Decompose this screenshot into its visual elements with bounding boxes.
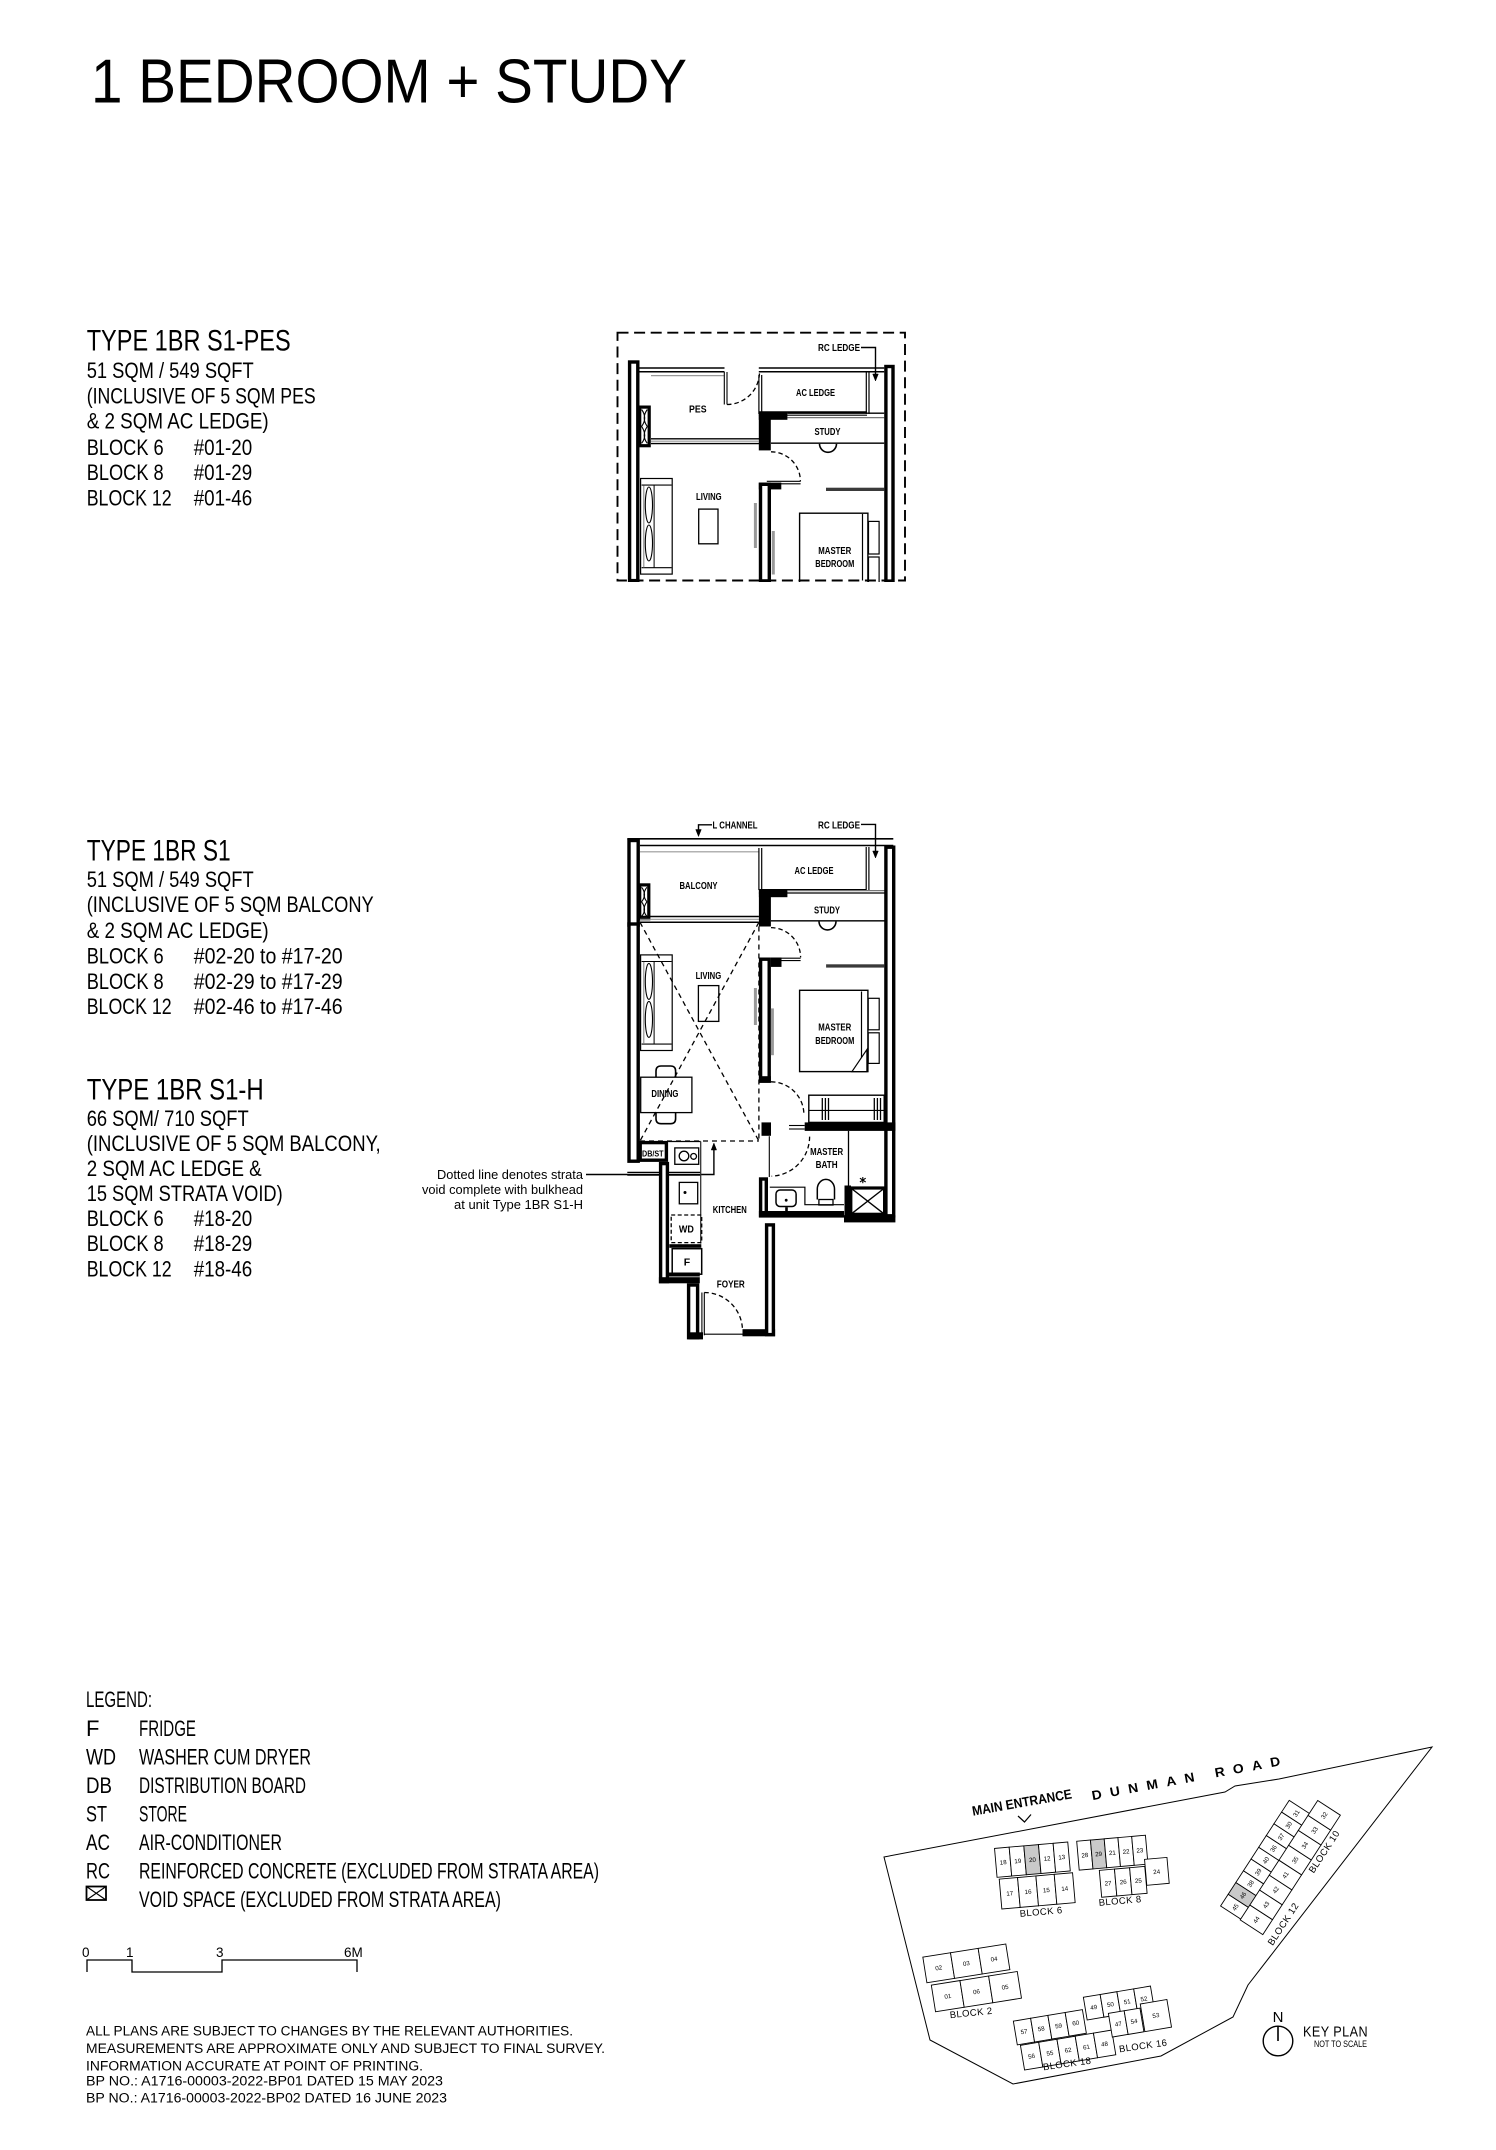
svg-text:BLOCK 6: BLOCK 6: [1019, 1905, 1063, 1920]
svg-text:66 SQM/ 710 SQFT: 66 SQM/ 710 SQFT: [87, 1106, 249, 1131]
svg-text:25: 25: [1135, 1877, 1143, 1885]
svg-text:LIVING: LIVING: [696, 491, 722, 503]
svg-text:AC: AC: [86, 1830, 110, 1855]
svg-text:TYPE 1BR S1-H: TYPE 1BR S1-H: [87, 1074, 264, 1107]
svg-text:BLOCK 6: BLOCK 6: [87, 944, 164, 969]
svg-text:(INCLUSIVE OF 5 SQM BALCONY: (INCLUSIVE OF 5 SQM BALCONY: [87, 892, 374, 917]
svg-text:18: 18: [999, 1859, 1007, 1867]
svg-text:MAIN ENTRANCE: MAIN ENTRANCE: [971, 1786, 1073, 1818]
svg-text:BP NO.: A1716-00003-2022-BP01: BP NO.: A1716-00003-2022-BP01 DATED 15 M…: [86, 2073, 443, 2088]
svg-text:BEDROOM: BEDROOM: [815, 558, 854, 570]
svg-text:19: 19: [1014, 1858, 1022, 1866]
svg-text:1 BEDROOM + STUDY: 1 BEDROOM + STUDY: [91, 47, 687, 116]
svg-text:21: 21: [1109, 1850, 1117, 1858]
svg-text:#02-29 to #17-29: #02-29 to #17-29: [194, 969, 343, 994]
svg-text:& 2 SQM AC LEDGE): & 2 SQM AC LEDGE): [87, 409, 269, 434]
svg-text:FOYER: FOYER: [717, 1278, 745, 1290]
svg-text:F: F: [684, 1257, 691, 1269]
svg-text:29: 29: [1095, 1851, 1103, 1859]
svg-text:STUDY: STUDY: [815, 426, 841, 438]
svg-text:BLOCK 8: BLOCK 8: [87, 1231, 164, 1256]
svg-text:REINFORCED CONCRETE (EXCLUDED: REINFORCED CONCRETE (EXCLUDED FROM STRAT…: [139, 1859, 599, 1884]
svg-text:BLOCK 8: BLOCK 8: [87, 460, 164, 485]
svg-text:26: 26: [1120, 1879, 1128, 1887]
svg-text:(INCLUSIVE OF 5 SQM PES: (INCLUSIVE OF 5 SQM PES: [87, 384, 316, 409]
svg-text:#01-46: #01-46: [194, 486, 253, 511]
svg-text:13: 13: [1058, 1854, 1066, 1862]
svg-text:RC: RC: [86, 1859, 110, 1884]
svg-text:F: F: [86, 1716, 99, 1741]
svg-text:#18-29: #18-29: [194, 1231, 253, 1256]
svg-text:INFORMATION ACCURATE AT POINT: INFORMATION ACCURATE AT POINT OF PRINTIN…: [86, 2058, 423, 2073]
svg-text:BLOCK 8: BLOCK 8: [87, 969, 164, 994]
svg-text:23: 23: [1136, 1847, 1144, 1855]
svg-text:at unit Type 1BR S1-H: at unit Type 1BR S1-H: [454, 1198, 583, 1212]
svg-text:ST: ST: [86, 1802, 107, 1827]
svg-text:14: 14: [1061, 1885, 1069, 1893]
svg-text:KITCHEN: KITCHEN: [713, 1204, 747, 1216]
svg-text:RC LEDGE: RC LEDGE: [818, 342, 860, 354]
svg-text:#02-20 to #17-20: #02-20 to #17-20: [194, 944, 343, 969]
svg-text:MEASUREMENTS ARE APPROXIMATE O: MEASUREMENTS ARE APPROXIMATE ONLY AND SU…: [86, 2041, 605, 2056]
svg-text:RC LEDGE: RC LEDGE: [818, 819, 860, 831]
svg-text:BLOCK 8: BLOCK 8: [1098, 1894, 1142, 1909]
svg-text:STUDY: STUDY: [814, 905, 840, 917]
svg-text:#01-29: #01-29: [194, 460, 253, 485]
svg-text:N: N: [1273, 2009, 1284, 2026]
svg-text:PES: PES: [689, 403, 707, 415]
svg-text:12: 12: [1043, 1855, 1051, 1863]
svg-text:2 SQM AC LEDGE &: 2 SQM AC LEDGE &: [87, 1156, 262, 1181]
svg-text:#01-20: #01-20: [194, 435, 253, 460]
svg-text:BP NO.: A1716-00003-2022-BP02: BP NO.: A1716-00003-2022-BP02 DATED 16 J…: [86, 2090, 447, 2105]
svg-text:DB: DB: [86, 1773, 112, 1798]
svg-text:STORE: STORE: [139, 1802, 187, 1827]
svg-text:& 2 SQM AC LEDGE): & 2 SQM AC LEDGE): [87, 918, 269, 943]
svg-text:DUNMAN ROAD: DUNMAN ROAD: [1090, 1752, 1289, 1803]
svg-text:51 SQM / 549 SQFT: 51 SQM / 549 SQFT: [87, 867, 254, 892]
svg-text:AC LEDGE: AC LEDGE: [795, 865, 834, 877]
svg-text:51 SQM / 549 SQFT: 51 SQM / 549 SQFT: [87, 358, 254, 383]
svg-text:WD: WD: [86, 1745, 116, 1770]
svg-text:DINING: DINING: [651, 1088, 678, 1100]
svg-text:(INCLUSIVE OF 5 SQM BALCONY,: (INCLUSIVE OF 5 SQM BALCONY,: [87, 1131, 381, 1156]
svg-text:MASTER: MASTER: [818, 545, 851, 557]
svg-text:LEGEND:: LEGEND:: [86, 1687, 152, 1712]
svg-text:AC LEDGE: AC LEDGE: [796, 387, 835, 399]
svg-text:0: 0: [82, 1945, 90, 1960]
svg-text:TYPE 1BR S1: TYPE 1BR S1: [87, 835, 231, 868]
svg-text:L CHANNEL: L CHANNEL: [713, 819, 758, 831]
svg-text:3: 3: [216, 1945, 224, 1960]
svg-text:TYPE 1BR S1-PES: TYPE 1BR S1-PES: [87, 325, 291, 358]
svg-text:MASTER: MASTER: [810, 1146, 843, 1158]
svg-text:DB/ST: DB/ST: [642, 1148, 664, 1158]
svg-text:20: 20: [1029, 1857, 1037, 1865]
svg-text:ALL PLANS ARE SUBJECT TO CHANG: ALL PLANS ARE SUBJECT TO CHANGES BY THE …: [86, 2023, 573, 2038]
svg-text:LIVING: LIVING: [696, 970, 722, 982]
svg-text:BLOCK 16: BLOCK 16: [1118, 2038, 1168, 2056]
svg-text:WASHER CUM DRYER: WASHER CUM DRYER: [139, 1745, 311, 1770]
svg-text:BLOCK 6: BLOCK 6: [87, 435, 164, 460]
svg-text:Dotted line denotes strata: Dotted line denotes strata: [437, 1168, 583, 1182]
svg-text:28: 28: [1081, 1852, 1089, 1860]
svg-text:#18-46: #18-46: [194, 1256, 253, 1281]
svg-text:NOT TO SCALE: NOT TO SCALE: [1314, 2039, 1367, 2050]
svg-text:17: 17: [1006, 1890, 1014, 1898]
svg-text:1: 1: [126, 1945, 134, 1960]
svg-text:BLOCK 12: BLOCK 12: [87, 486, 172, 511]
svg-text:BALCONY: BALCONY: [680, 880, 718, 892]
svg-text:FRIDGE: FRIDGE: [139, 1716, 196, 1741]
svg-text:BLOCK 12: BLOCK 12: [87, 994, 172, 1019]
svg-text:27: 27: [1104, 1880, 1112, 1888]
svg-text:DISTRIBUTION BOARD: DISTRIBUTION BOARD: [139, 1773, 306, 1798]
svg-text:24: 24: [1153, 1869, 1161, 1877]
svg-text:AIR-CONDITIONER: AIR-CONDITIONER: [139, 1830, 282, 1855]
svg-text:#02-46 to #17-46: #02-46 to #17-46: [194, 994, 343, 1019]
svg-text:VOID SPACE (EXCLUDED FROM STRA: VOID SPACE (EXCLUDED FROM STRATA AREA): [139, 1887, 501, 1912]
svg-text:WD: WD: [679, 1224, 694, 1236]
svg-text:MASTER: MASTER: [818, 1022, 851, 1034]
svg-text:15 SQM STRATA VOID): 15 SQM STRATA VOID): [87, 1181, 283, 1206]
svg-text:BLOCK 6: BLOCK 6: [87, 1206, 164, 1231]
svg-text:void complete with bulkhead: void complete with bulkhead: [422, 1183, 583, 1197]
svg-text:BLOCK 12: BLOCK 12: [87, 1256, 172, 1281]
svg-text:BATH: BATH: [816, 1159, 838, 1171]
svg-text:BEDROOM: BEDROOM: [815, 1035, 854, 1047]
svg-text:22: 22: [1122, 1848, 1130, 1856]
svg-text:#18-20: #18-20: [194, 1206, 253, 1231]
svg-text:6M: 6M: [344, 1945, 363, 1960]
svg-text:15: 15: [1043, 1887, 1051, 1895]
svg-text:16: 16: [1024, 1889, 1032, 1897]
